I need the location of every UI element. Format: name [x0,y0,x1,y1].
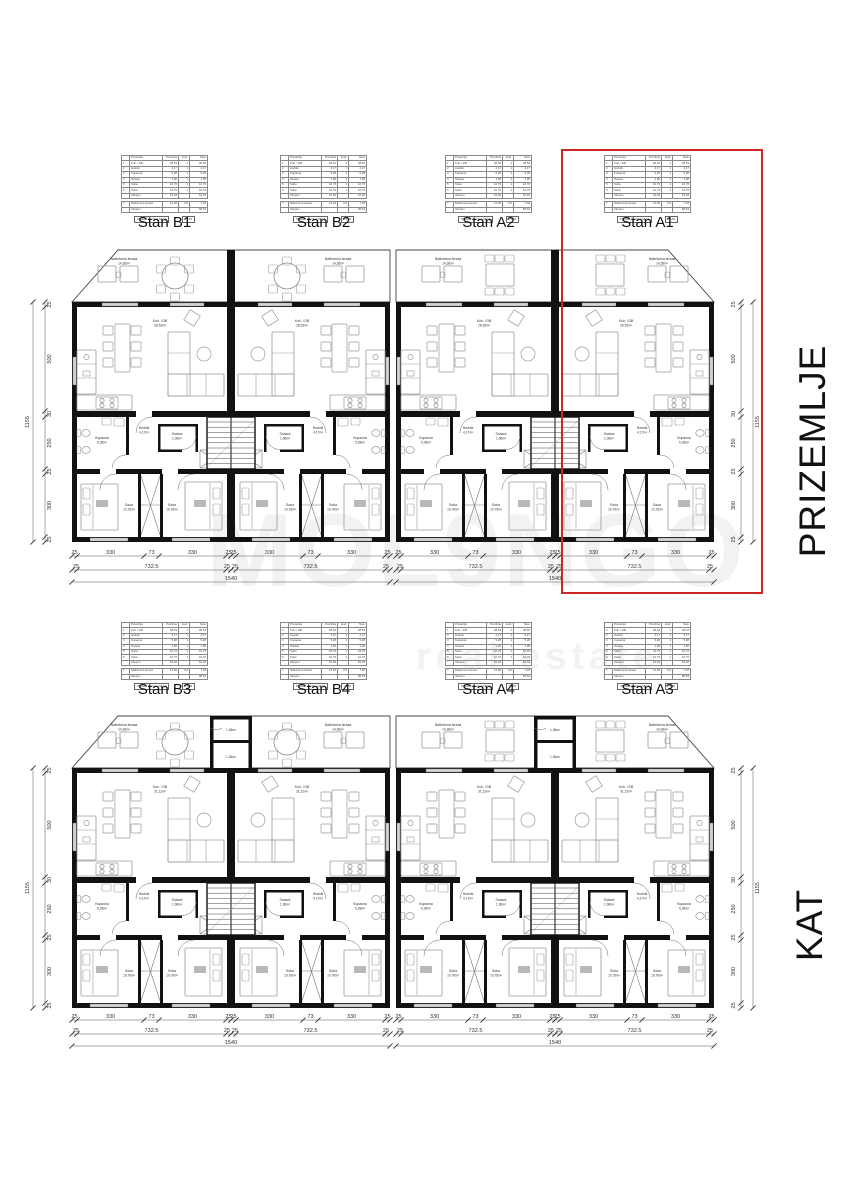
unit-label-stan-b4: Stan B4 [244,681,404,698]
svg-text:Hodnik: Hodnik [637,892,648,896]
svg-text:25: 25 [230,550,236,556]
svg-text:Soba: Soba [329,503,337,507]
svg-text:10,76m²: 10,76m² [284,973,296,977]
staircase [531,883,579,935]
svg-text:31,12m²: 31,12m² [478,789,490,793]
svg-text:1,96m²: 1,96m² [280,902,290,906]
svg-text:73: 73 [631,1014,637,1020]
svg-text:4,17m²: 4,17m² [313,896,323,900]
svg-text:73: 73 [472,550,478,556]
svg-text:1,96m²: 1,96m² [604,902,614,906]
svg-text:Natkrivena terasa: Natkrivena terasa [325,257,352,261]
svg-text:Kupaona: Kupaona [95,902,109,906]
unit-area-table-stan-a1: ProstorijaPovršinakoef.Neto1Kuh. i DB28,… [600,155,696,223]
svg-text:Ostava: Ostava [172,432,183,436]
svg-text:10,76m²: 10,76m² [284,507,296,511]
svg-text:10,76m²: 10,76m² [166,973,178,977]
svg-text:Natkrivena terasa: Natkrivena terasa [435,723,462,727]
svg-text:25: 25 [556,1028,562,1034]
svg-text:Kuh. i DB: Kuh. i DB [153,785,168,789]
svg-text:330: 330 [671,1014,680,1020]
svg-text:14,36m²: 14,36m² [118,261,130,265]
svg-text:330: 330 [430,550,439,556]
svg-text:732.5: 732.5 [469,1028,483,1034]
svg-text:1540: 1540 [225,576,237,582]
svg-text:10,76m²: 10,76m² [490,973,502,977]
svg-text:Kuh. i DB: Kuh. i DB [477,319,492,323]
svg-text:330: 330 [347,1014,356,1020]
svg-text:5,28m²: 5,28m² [355,440,365,444]
svg-text:25: 25 [232,564,238,570]
unit-area-table-stan-a3: ProstorijaPovršinakoef.Neto1Kuh. i DB28,… [600,622,696,690]
svg-text:14,36m²: 14,36m² [442,727,454,731]
svg-text:Ostava: Ostava [280,898,291,902]
floorplan-sheet: MOL9NGO real estate Natkrivena terasa14,… [0,0,848,1200]
svg-text:25: 25 [47,536,53,542]
svg-text:Soba: Soba [168,503,176,507]
svg-text:250: 250 [47,438,53,447]
unit-area-table-stan-a4: ProstorijaPovršinakoef.Neto1Kuh. i DB28,… [441,622,537,690]
svg-text:5,28m²: 5,28m² [97,440,107,444]
svg-text:1155: 1155 [25,416,31,428]
svg-text:30: 30 [731,877,737,883]
svg-text:14,36m²: 14,36m² [118,727,130,731]
svg-text:330: 330 [106,550,115,556]
svg-text:4,17m²: 4,17m² [637,896,647,900]
svg-text:10,76m²: 10,76m² [447,973,459,977]
svg-text:10,76m²: 10,76m² [490,507,502,511]
svg-text:5,28m²: 5,28m² [421,906,431,910]
svg-text:Soba: Soba [286,969,294,973]
svg-text:28,53m²: 28,53m² [154,323,166,327]
unit-stan-b1 [72,257,231,542]
svg-text:1,96m²: 1,96m² [496,902,506,906]
svg-text:1155: 1155 [25,882,31,894]
svg-text:Ostava: Ostava [280,432,291,436]
svg-text:Hodnik: Hodnik [463,892,474,896]
svg-text:25: 25 [73,564,79,570]
svg-text:250: 250 [47,904,53,913]
svg-text:Natkrivena terasa: Natkrivena terasa [325,723,352,727]
svg-text:1540: 1540 [549,576,561,582]
svg-text:25: 25 [397,1028,403,1034]
svg-text:25: 25 [395,550,401,556]
svg-text:1540: 1540 [549,1040,561,1046]
building-2-floor-2: Natkrivena terasa14,36m²Kuh. i DB31,12m²… [396,716,714,1008]
svg-text:Kuh. i DB: Kuh. i DB [295,785,310,789]
svg-text:Natkrivena terasa: Natkrivena terasa [649,723,676,727]
svg-text:10,76m²: 10,76m² [166,507,178,511]
floor-title-prizemlje: PRIZEMLJE [792,345,834,558]
floor-title-kat: KAT [789,889,831,961]
svg-text:25: 25 [47,934,53,940]
staircase [207,883,255,935]
svg-text:732.5: 732.5 [304,1028,318,1034]
svg-text:5,28m²: 5,28m² [355,906,365,910]
svg-text:330: 330 [188,1014,197,1020]
svg-text:28,53m²: 28,53m² [478,323,490,327]
svg-text:732.5: 732.5 [304,564,318,570]
svg-text:25: 25 [731,934,737,940]
svg-text:25: 25 [708,1014,714,1020]
svg-text:330: 330 [106,1014,115,1020]
unit-stan-a2 [396,255,555,542]
unit-label-stan-b2: Stan B2 [244,214,404,231]
svg-text:Natkrivena terasa: Natkrivena terasa [435,257,462,261]
svg-text:250: 250 [731,904,737,913]
svg-text:330: 330 [512,1014,521,1020]
svg-text:330: 330 [512,550,521,556]
terrace-box [534,716,576,768]
svg-text:Soba: Soba [492,969,500,973]
svg-text:31,12m²: 31,12m² [296,789,308,793]
svg-text:330: 330 [188,550,197,556]
svg-text:1,36m²: 1,36m² [550,728,560,732]
dimension-lines-bottom: 25330733302525732.52525330733302525732.5… [393,1014,716,1048]
svg-text:25: 25 [707,1028,713,1034]
svg-text:25: 25 [383,1028,389,1034]
staircase [207,417,255,469]
svg-text:5,28m²: 5,28m² [97,906,107,910]
svg-text:Kuh. i DB: Kuh. i DB [619,785,634,789]
svg-text:28,53m²: 28,53m² [296,323,308,327]
svg-text:Ostava: Ostava [496,898,507,902]
svg-text:30: 30 [47,877,53,883]
svg-text:Kupaona: Kupaona [95,436,109,440]
svg-text:25: 25 [71,550,77,556]
svg-text:14,36m²: 14,36m² [442,261,454,265]
svg-text:1,36m²: 1,36m² [226,728,236,732]
svg-text:5,28m²: 5,28m² [679,906,689,910]
svg-text:73: 73 [307,550,313,556]
svg-text:Ostava: Ostava [496,432,507,436]
svg-text:25: 25 [548,564,554,570]
svg-text:25: 25 [73,1028,79,1034]
svg-text:300: 300 [47,501,53,510]
svg-text:25: 25 [731,767,737,773]
svg-text:1,96m²: 1,96m² [172,902,182,906]
unit-stan-b3 [72,723,231,1008]
svg-text:Hodnik: Hodnik [139,426,150,430]
svg-text:25: 25 [224,1028,230,1034]
svg-text:Kupaona: Kupaona [353,902,367,906]
svg-text:25: 25 [397,564,403,570]
svg-text:73: 73 [472,1014,478,1020]
svg-text:1,36m²: 1,36m² [550,755,560,759]
svg-text:Kuh. i DB: Kuh. i DB [477,785,492,789]
svg-text:25: 25 [395,1014,401,1020]
svg-text:Soba: Soba [329,969,337,973]
svg-text:Soba: Soba [653,969,661,973]
svg-text:31,12m²: 31,12m² [620,789,632,793]
svg-text:10,76m²: 10,76m² [608,973,620,977]
svg-text:Hodnik: Hodnik [139,892,150,896]
svg-text:25: 25 [71,1014,77,1020]
svg-text:Kuh. i DB: Kuh. i DB [295,319,310,323]
svg-text:Hodnik: Hodnik [463,426,474,430]
building-1-floor-1: Natkrivena terasa14,36m²Kuh. i DB28,53m²… [72,250,390,542]
unit-area-table-stan-b2: ProstorijaPovršinakoef.Neto1Kuh. i DB28,… [276,155,372,223]
svg-text:Natkrivena terasa: Natkrivena terasa [111,723,138,727]
unit-stan-a3 [555,721,714,1008]
svg-text:25: 25 [384,1014,390,1020]
svg-text:300: 300 [47,967,53,976]
svg-text:1,96m²: 1,96m² [496,436,506,440]
unit-area-table-stan-b1: ProstorijaPovršinakoef.Neto1Kuh. i DB28,… [117,155,213,223]
svg-text:4,17m²: 4,17m² [139,896,149,900]
svg-text:330: 330 [347,550,356,556]
unit-label-stan-a4: Stan A4 [409,681,569,698]
svg-text:10,76m²: 10,76m² [447,507,459,511]
svg-text:Ostava: Ostava [172,898,183,902]
building-1-floor-2: Natkrivena terasa14,36m²Kuh. i DB31,12m²… [72,716,390,1008]
svg-text:31,12m²: 31,12m² [154,789,166,793]
svg-text:Soba: Soba [492,503,500,507]
svg-text:25: 25 [384,550,390,556]
svg-text:500: 500 [731,820,737,829]
svg-text:732.5: 732.5 [145,564,159,570]
svg-text:330: 330 [430,1014,439,1020]
svg-text:73: 73 [307,1014,313,1020]
svg-text:73: 73 [148,550,154,556]
svg-text:500: 500 [47,354,53,363]
svg-text:30: 30 [47,411,53,417]
svg-text:1155: 1155 [755,882,761,894]
svg-text:25: 25 [47,767,53,773]
svg-text:1,36m²: 1,36m² [226,755,236,759]
unit-label-stan-b3: Stan B3 [85,681,245,698]
unit-label-stan-a3: Stan A3 [568,681,728,698]
svg-text:Kuh. i DB: Kuh. i DB [153,319,168,323]
svg-text:10,76m²: 10,76m² [327,507,339,511]
svg-text:330: 330 [265,1014,274,1020]
svg-text:25: 25 [548,1028,554,1034]
svg-text:300: 300 [731,967,737,976]
unit-stan-b4 [231,723,390,1008]
svg-text:10,76m²: 10,76m² [123,507,135,511]
unit-stan-a4 [396,721,555,1008]
svg-text:25: 25 [383,564,389,570]
svg-text:Kupaona: Kupaona [353,436,367,440]
svg-text:Kupaona: Kupaona [419,902,433,906]
svg-text:25: 25 [224,564,230,570]
svg-text:25: 25 [731,1002,737,1008]
svg-text:10,76m²: 10,76m² [327,973,339,977]
unit-area-table-stan-b4: ProstorijaPovršinakoef.Neto1Kuh. i DB28,… [276,622,372,690]
svg-text:25: 25 [47,301,53,307]
svg-text:1,96m²: 1,96m² [280,436,290,440]
svg-text:Soba: Soba [125,969,133,973]
svg-text:Soba: Soba [449,503,457,507]
svg-text:1540: 1540 [225,1040,237,1046]
svg-text:Soba: Soba [286,503,294,507]
svg-text:330: 330 [589,1014,598,1020]
svg-text:Soba: Soba [610,969,618,973]
svg-text:25: 25 [554,550,560,556]
dimension-lines-bottom: 25330733302525732.52525330733302525732.5… [69,550,392,584]
svg-text:25: 25 [232,1028,238,1034]
svg-text:Ostava: Ostava [604,898,615,902]
unit-stan-b2 [231,257,390,542]
svg-text:4,17m²: 4,17m² [463,430,473,434]
svg-text:25: 25 [47,468,53,474]
svg-text:Kupaona: Kupaona [677,902,691,906]
svg-text:25: 25 [554,1014,560,1020]
svg-text:4,17m²: 4,17m² [463,896,473,900]
svg-text:Soba: Soba [168,969,176,973]
svg-text:25: 25 [47,1002,53,1008]
dimension-lines-bottom: 25330733302525732.52525330733302525732.5… [69,1014,392,1048]
svg-text:Hodnik: Hodnik [313,426,324,430]
svg-text:Natkrivena terasa: Natkrivena terasa [111,257,138,261]
unit-label-stan-a2: Stan A2 [409,214,569,231]
svg-text:732.5: 732.5 [145,1028,159,1034]
svg-text:Soba: Soba [449,969,457,973]
svg-text:Soba: Soba [125,503,133,507]
svg-text:73: 73 [148,1014,154,1020]
unit-area-table-stan-a2: ProstorijaPovršinakoef.Neto1Kuh. i DB28,… [441,155,537,223]
svg-text:10,76m²: 10,76m² [123,973,135,977]
svg-text:4,17m²: 4,17m² [313,430,323,434]
terrace-box [210,716,252,768]
svg-text:14,36m²: 14,36m² [332,727,344,731]
unit-area-table-stan-b3: ProstorijaPovršinakoef.Neto1Kuh. i DB28,… [117,622,213,690]
unit-label-stan-b1: Stan B1 [85,214,245,231]
svg-text:1,96m²: 1,96m² [172,436,182,440]
svg-text:4,17m²: 4,17m² [139,430,149,434]
svg-text:732.5: 732.5 [469,564,483,570]
svg-text:14,36m²: 14,36m² [656,727,668,731]
svg-text:500: 500 [47,820,53,829]
unit-label-stan-a1: Stan A1 [568,214,728,231]
svg-text:Kupaona: Kupaona [419,436,433,440]
svg-text:14,36m²: 14,36m² [332,261,344,265]
svg-text:Hodnik: Hodnik [313,892,324,896]
svg-text:330: 330 [265,550,274,556]
svg-text:732.5: 732.5 [628,1028,642,1034]
svg-text:10,76m²: 10,76m² [651,973,663,977]
svg-text:25: 25 [230,1014,236,1020]
svg-text:5,28m²: 5,28m² [421,440,431,444]
